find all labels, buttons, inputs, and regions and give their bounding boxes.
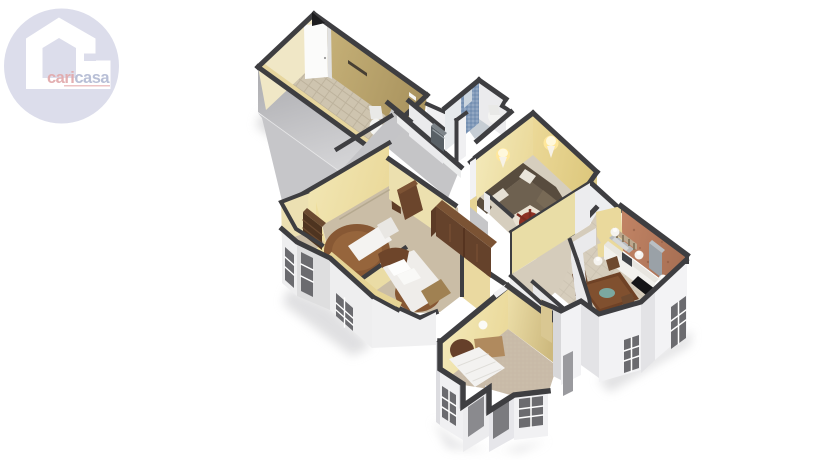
svg-text:caricasa: caricasa [47,69,110,87]
